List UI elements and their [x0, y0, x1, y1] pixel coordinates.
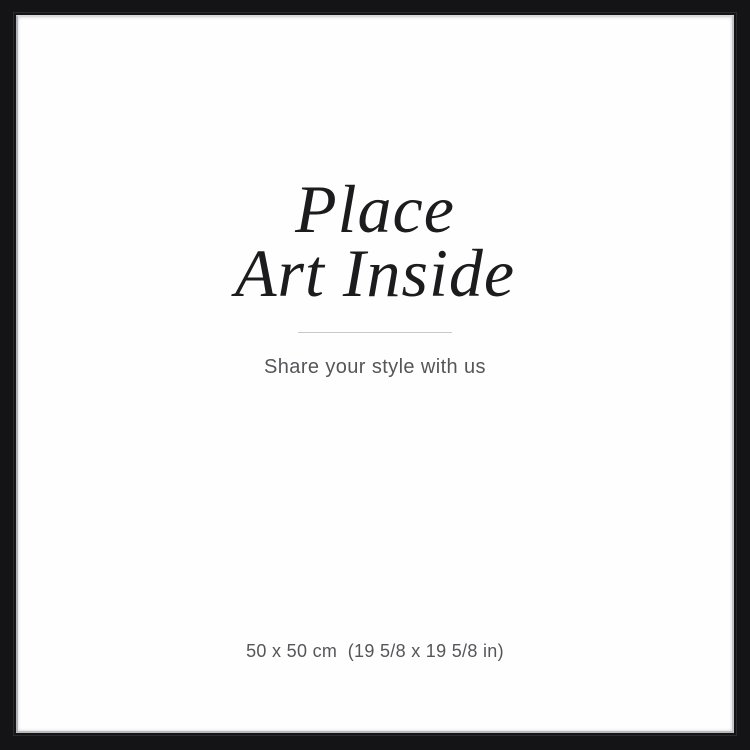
subtitle: Share your style with us [18, 355, 732, 379]
divider-line [298, 332, 452, 333]
size-label: 50 x 50 cm (19 5/8 x 19 5/8 in) [18, 640, 732, 662]
heading: PlaceArt Inside [18, 177, 732, 305]
placeholder-insert: PlaceArt Inside Share your style with us… [16, 15, 734, 733]
heading-line-2: Art Inside [235, 235, 515, 311]
framed-print-photo: PlaceArt Inside Share your style with us… [0, 0, 750, 750]
picture-frame: PlaceArt Inside Share your style with us… [0, 0, 750, 750]
